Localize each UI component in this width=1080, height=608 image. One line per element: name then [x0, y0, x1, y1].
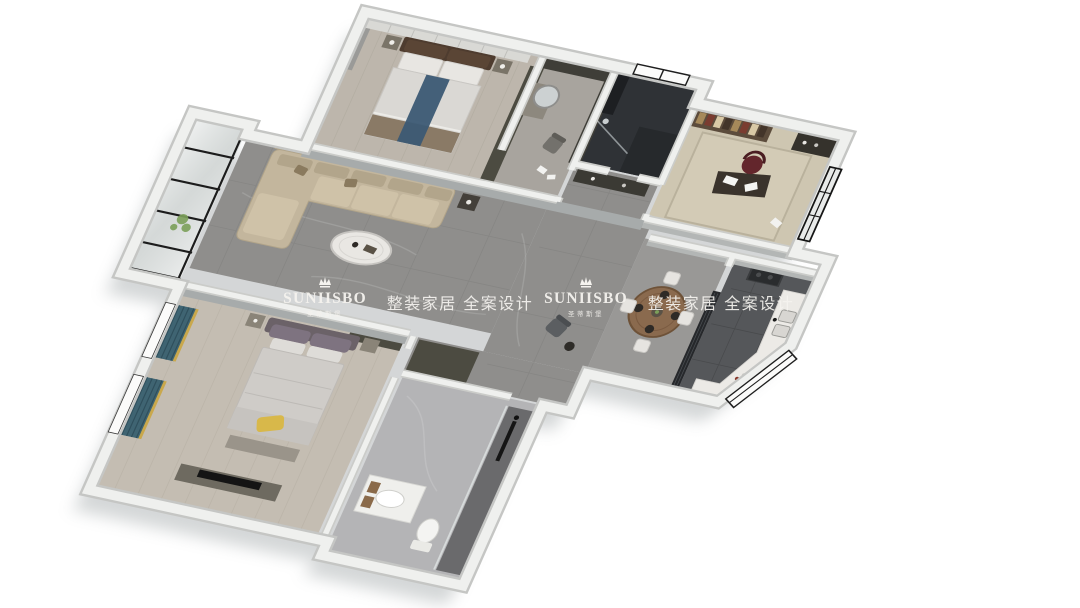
watermark-brand-zh: 圣蒂斯堡 [568, 309, 604, 318]
paper-sheet [547, 175, 556, 180]
study-desk [712, 171, 771, 197]
watermark-brand: SUNIISBO [544, 290, 628, 307]
watermark-brand-zh: 圣蒂斯堡 [307, 309, 343, 318]
watermark-brand: SUNIISBO [283, 290, 367, 307]
watermark-tagline: 整装家居 全案设计 [387, 294, 534, 313]
floorplan-svg: SUNIISBO 圣蒂斯堡 整装家居 全案设计 SUNIISBO 圣蒂斯堡 整装… [0, 0, 1080, 608]
yellow-pillow [256, 415, 284, 433]
throw-pillow [344, 179, 358, 188]
watermark-tagline: 整装家居 全案设计 [648, 294, 795, 313]
floorplan-render: SUNIISBO 圣蒂斯堡 整装家居 全案设计 SUNIISBO 圣蒂斯堡 整装… [0, 0, 1080, 608]
